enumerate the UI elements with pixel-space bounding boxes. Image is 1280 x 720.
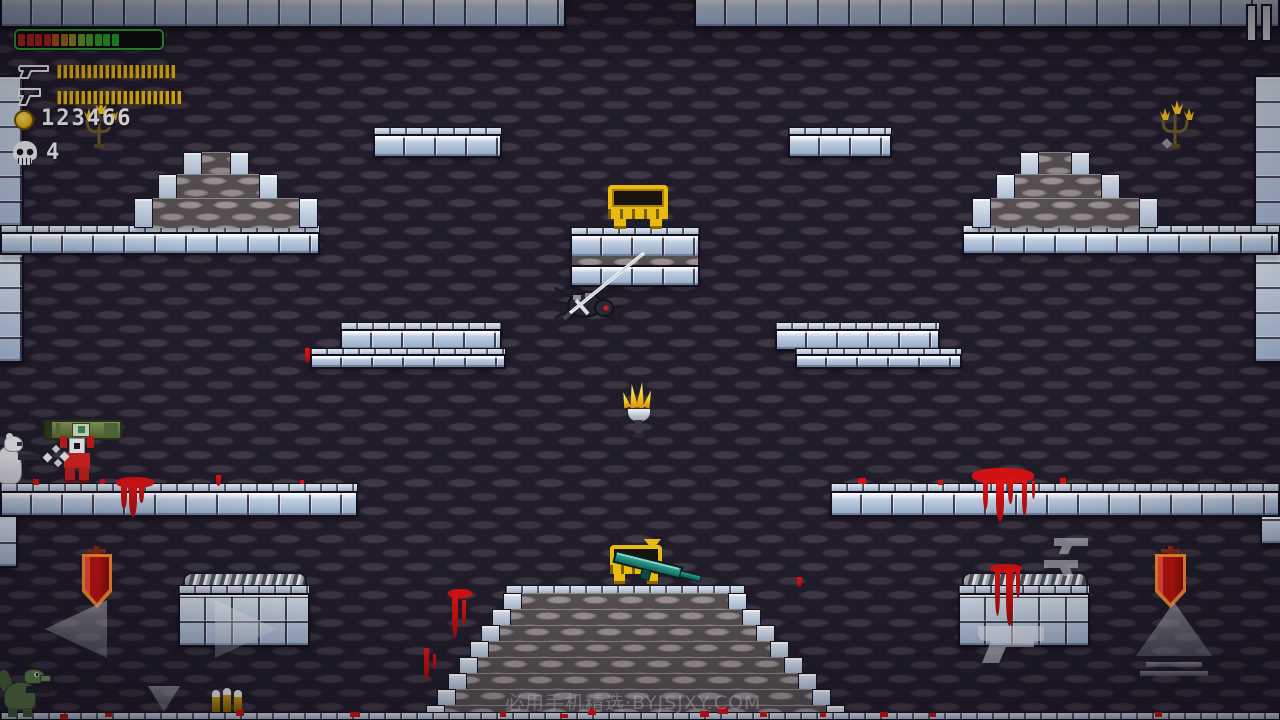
muzzle-flash: [44, 446, 68, 472]
pyramid-right-row3: [974, 198, 1156, 228]
wall-stub-bottom-right: [1260, 515, 1280, 545]
wall-column-left-lower: [0, 253, 24, 363]
ledge-upper-left: [0, 225, 320, 255]
long-gun-icon: [12, 61, 52, 81]
jump-button[interactable]: [1136, 602, 1212, 680]
torch-icon: [620, 382, 656, 440]
ammo-pickup: [212, 686, 244, 712]
wall-stub-bottom-left: [0, 515, 18, 568]
platform-top-left: [373, 127, 502, 158]
ceiling-right: [694, 0, 1280, 28]
swap-weapon-button[interactable]: [1040, 536, 1092, 580]
coin-count: 123466: [41, 106, 132, 131]
lizard-enemy: [0, 664, 54, 716]
sword-icon: [558, 243, 654, 321]
treasure-chest-upper: [608, 185, 668, 229]
health-bar: [14, 29, 164, 50]
hud: 123466 4: [0, 0, 24, 19]
pause-icon: [1246, 4, 1257, 42]
game-stage: 123466 4 必用手机精选·BYJSJXY.COM: [0, 0, 1280, 720]
banner-left: [82, 546, 112, 608]
ledge-upper-right: [962, 225, 1280, 255]
coin-icon: [14, 110, 34, 130]
watermark-text: 必用手机精选·BYJSJXY.COM: [505, 688, 761, 715]
ammo-row-secondary: [57, 89, 183, 105]
up-arrow-icon: [1136, 602, 1212, 656]
banner-right: [1155, 546, 1186, 608]
ledge-lower-left: [0, 483, 358, 517]
candelabra-icon-right: [1152, 94, 1198, 150]
pyramid-left-row3: [136, 198, 316, 228]
wall-column-right-upper: [1254, 75, 1280, 227]
pause-button[interactable]: [1246, 4, 1276, 44]
fire-button[interactable]: [968, 616, 1052, 674]
platform-top-right: [788, 127, 892, 158]
wall-column-right-lower: [1254, 253, 1280, 363]
skull-icon: [13, 141, 37, 160]
kill-count: 4: [46, 140, 61, 165]
platform-mid-right: [775, 322, 962, 369]
platform-mid-left: [310, 322, 506, 369]
pistol-icon: [16, 85, 44, 108]
move-left-button[interactable]: [45, 600, 107, 658]
ammo-row-primary: [57, 63, 177, 79]
bear-enemy: [0, 436, 30, 488]
ledge-lower-right: [830, 483, 1280, 517]
drop-down-button[interactable]: [148, 686, 180, 712]
ceiling-left: [0, 0, 566, 28]
